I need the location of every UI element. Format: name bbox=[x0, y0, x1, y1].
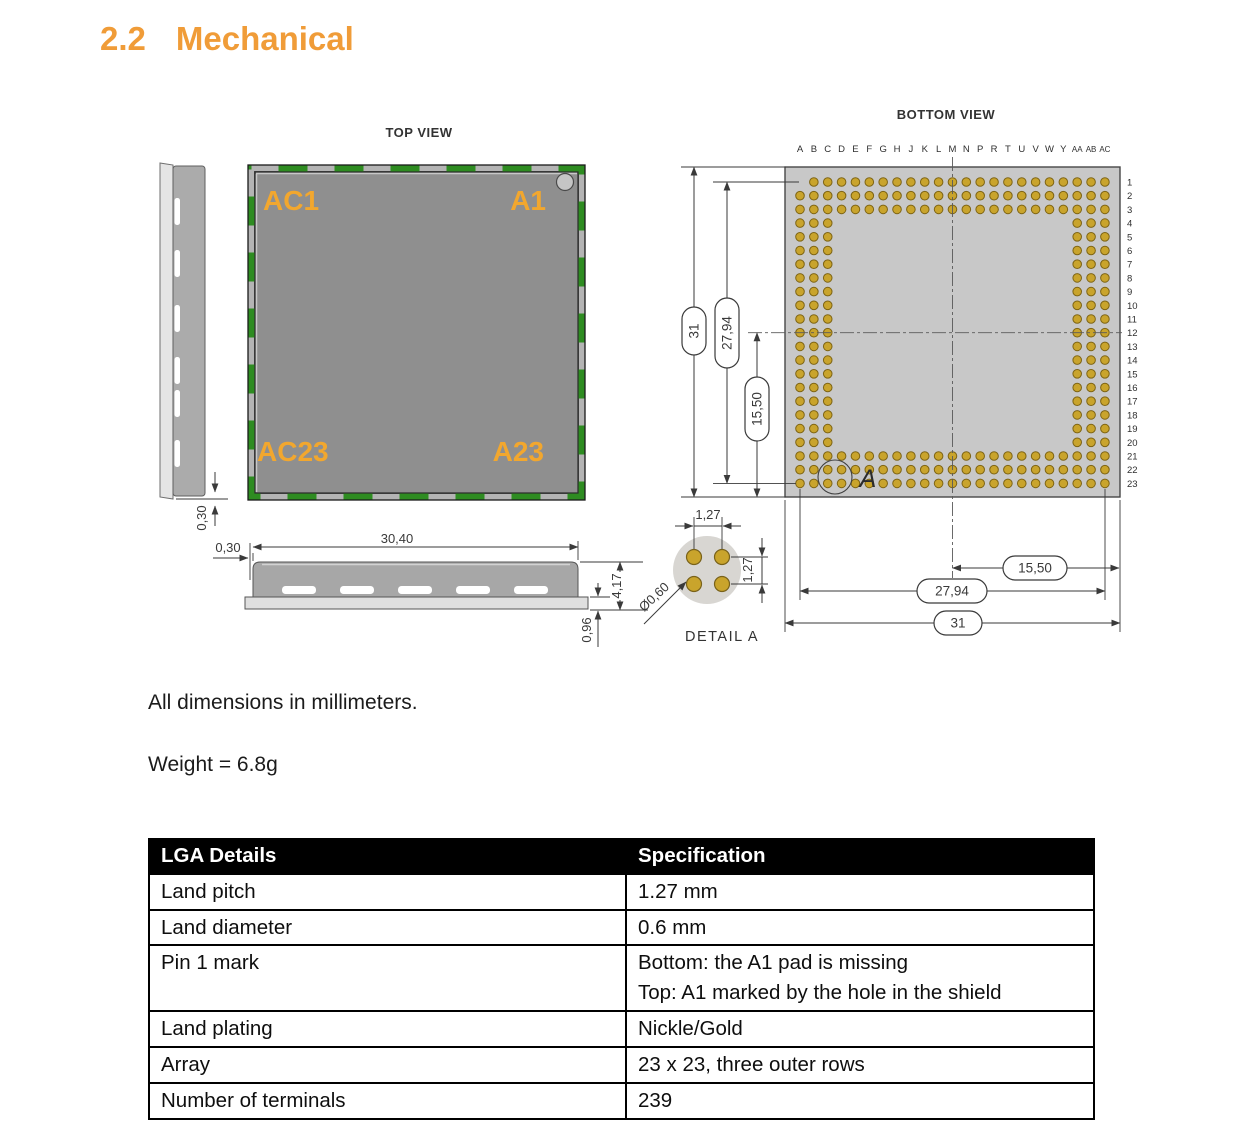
table-cell-spec: 23 x 23, three outer rows bbox=[626, 1047, 1094, 1083]
lga-pad bbox=[1087, 342, 1096, 351]
row-label: 19 bbox=[1127, 424, 1138, 435]
note-dimensions: All dimensions in millimeters. bbox=[148, 691, 418, 715]
lga-pad bbox=[976, 191, 985, 200]
lga-pad bbox=[1073, 479, 1082, 488]
lga-pad bbox=[934, 465, 943, 474]
lga-pad bbox=[1059, 178, 1068, 187]
lga-pad bbox=[1073, 191, 1082, 200]
lga-pad bbox=[823, 233, 832, 242]
lga-pad bbox=[1101, 191, 1110, 200]
lga-pad bbox=[1045, 178, 1054, 187]
castellation-slot bbox=[175, 250, 181, 277]
lga-pad bbox=[1017, 205, 1026, 214]
lga-pad bbox=[976, 452, 985, 461]
dim-front-offset: 0,30 bbox=[215, 540, 240, 555]
dim-detail-pad-diameter: Ø0,60 bbox=[636, 579, 672, 614]
corner-label-ac1: AC1 bbox=[263, 185, 319, 216]
lga-pad bbox=[948, 205, 957, 214]
lga-pad bbox=[990, 191, 999, 200]
lga-pad bbox=[1073, 287, 1082, 296]
dim-width-half: 15,50 bbox=[1003, 556, 1067, 580]
lga-pad bbox=[823, 383, 832, 392]
lga-pad bbox=[879, 191, 888, 200]
lga-pad bbox=[907, 479, 916, 488]
section-heading: 2.2Mechanical bbox=[100, 20, 354, 58]
mechanical-drawing: 0,30TOP VIEWAC1A1AC23A2330,400,304,170,9… bbox=[0, 0, 1240, 675]
lga-pad bbox=[1087, 274, 1096, 283]
lga-pad bbox=[810, 246, 819, 255]
lga-pad bbox=[1073, 246, 1082, 255]
lga-pad bbox=[823, 370, 832, 379]
lga-pad bbox=[1073, 356, 1082, 365]
lga-pad bbox=[907, 205, 916, 214]
lga-pad bbox=[810, 370, 819, 379]
lga-pad bbox=[796, 191, 805, 200]
lga-pad bbox=[823, 205, 832, 214]
dim-side-offset: 0,30 bbox=[194, 505, 209, 530]
lga-pad bbox=[837, 178, 846, 187]
lga-pad bbox=[837, 452, 846, 461]
lga-pad bbox=[823, 178, 832, 187]
lga-pad bbox=[920, 178, 929, 187]
dim-width-total: 31 bbox=[934, 611, 982, 635]
lga-pad bbox=[879, 178, 888, 187]
lga-pad bbox=[1087, 452, 1096, 461]
lga-pad bbox=[948, 191, 957, 200]
lga-pad bbox=[1031, 479, 1040, 488]
lga-pad bbox=[976, 479, 985, 488]
lga-pad bbox=[837, 479, 846, 488]
row-label: 14 bbox=[1127, 356, 1138, 367]
lga-pad bbox=[934, 452, 943, 461]
section-number: 2.2 bbox=[100, 20, 146, 57]
lga-pad bbox=[1004, 479, 1013, 488]
lga-pad bbox=[823, 328, 832, 337]
lga-pad bbox=[851, 479, 860, 488]
lga-pad bbox=[796, 383, 805, 392]
lga-pad bbox=[837, 205, 846, 214]
lga-pad bbox=[1087, 356, 1096, 365]
top-view-title: TOP VIEW bbox=[385, 125, 452, 140]
lga-pad bbox=[1101, 274, 1110, 283]
lga-pad bbox=[810, 465, 819, 474]
detail-a-disc bbox=[673, 536, 741, 604]
lga-pad bbox=[810, 411, 819, 420]
lga-pad bbox=[1059, 479, 1068, 488]
note-weight: Weight = 6.8g bbox=[148, 753, 278, 777]
pad-array bbox=[796, 178, 1110, 488]
row-label: 13 bbox=[1127, 342, 1138, 353]
svg-text:31: 31 bbox=[950, 616, 965, 631]
row-label: 9 bbox=[1127, 287, 1132, 298]
lga-pad bbox=[1031, 191, 1040, 200]
lga-pad bbox=[990, 178, 999, 187]
lga-pad bbox=[1073, 452, 1082, 461]
column-label: H bbox=[894, 144, 901, 155]
row-label: 12 bbox=[1127, 328, 1138, 339]
table-cell-spec: 1.27 mm bbox=[626, 874, 1094, 910]
lga-pad bbox=[1017, 178, 1026, 187]
row-label: 6 bbox=[1127, 246, 1132, 257]
detail-a-title: DETAIL A bbox=[685, 629, 759, 645]
lga-pad bbox=[851, 191, 860, 200]
bottom-view: BOTTOM VIEWABCDEFGHJKLMNPRTUVWYAAABAC123… bbox=[748, 107, 1138, 578]
lga-pad bbox=[1101, 246, 1110, 255]
column-label: N bbox=[963, 144, 970, 155]
row-label: 4 bbox=[1127, 219, 1132, 230]
lga-pad bbox=[810, 438, 819, 447]
lga-pad bbox=[865, 205, 874, 214]
lga-pad bbox=[810, 205, 819, 214]
lga-pad bbox=[823, 465, 832, 474]
table-cell-label: Array bbox=[149, 1047, 626, 1083]
table-cell-spec: 239 bbox=[626, 1083, 1094, 1119]
column-label: AB bbox=[1086, 145, 1097, 154]
dim-height-total: 31 bbox=[682, 307, 706, 355]
lga-pad bbox=[948, 178, 957, 187]
table-cell-spec: Nickle/Gold bbox=[626, 1011, 1094, 1047]
lga-pad bbox=[907, 465, 916, 474]
row-label: 17 bbox=[1127, 397, 1138, 408]
lga-pad bbox=[1087, 287, 1096, 296]
lga-pad bbox=[976, 205, 985, 214]
row-label: 10 bbox=[1127, 301, 1138, 312]
column-label: C bbox=[824, 144, 831, 155]
row-label: 5 bbox=[1127, 232, 1132, 243]
column-label: J bbox=[909, 144, 914, 155]
lga-pad bbox=[715, 550, 730, 565]
lga-pad bbox=[1087, 438, 1096, 447]
lga-pad bbox=[1101, 479, 1110, 488]
lga-pad bbox=[920, 191, 929, 200]
lga-pad bbox=[837, 191, 846, 200]
section-title: Mechanical bbox=[176, 20, 354, 57]
top-view: TOP VIEWAC1A1AC23A23 bbox=[248, 125, 585, 500]
lga-pad bbox=[796, 287, 805, 296]
lga-pad bbox=[865, 452, 874, 461]
row-label: 3 bbox=[1127, 205, 1132, 216]
svg-text:31: 31 bbox=[687, 323, 702, 338]
castellation-slot bbox=[456, 586, 490, 594]
lga-pad bbox=[1101, 287, 1110, 296]
lga-pad bbox=[810, 356, 819, 365]
lga-pad bbox=[1101, 383, 1110, 392]
column-label: D bbox=[838, 144, 845, 155]
lga-pad bbox=[851, 205, 860, 214]
lga-pad bbox=[796, 424, 805, 433]
table-cell-label: Land diameter bbox=[149, 910, 626, 946]
lga-pad bbox=[1087, 328, 1096, 337]
table-row: Land diameter0.6 mm bbox=[149, 910, 1094, 946]
castellation-dashes bbox=[252, 169, 582, 497]
lga-pad bbox=[1073, 328, 1082, 337]
lga-pad bbox=[823, 219, 832, 228]
lga-pad bbox=[948, 479, 957, 488]
lga-pad bbox=[1073, 178, 1082, 187]
lga-pad bbox=[796, 465, 805, 474]
column-label: Y bbox=[1060, 144, 1067, 155]
lga-pad bbox=[990, 465, 999, 474]
lga-pad bbox=[810, 383, 819, 392]
lga-pad bbox=[1017, 465, 1026, 474]
lga-pad bbox=[1073, 397, 1082, 406]
lga-pad bbox=[1087, 191, 1096, 200]
lga-pad bbox=[1101, 178, 1110, 187]
lga-pad bbox=[976, 465, 985, 474]
lga-pad bbox=[1087, 233, 1096, 242]
lga-details-table: LGA Details Specification Land pitch1.27… bbox=[148, 838, 1095, 1120]
pcb-profile bbox=[245, 597, 588, 609]
lga-pad bbox=[810, 233, 819, 242]
column-label: G bbox=[879, 144, 886, 155]
lga-pad bbox=[1101, 411, 1110, 420]
lga-pad bbox=[1073, 219, 1082, 228]
lga-pad bbox=[1045, 205, 1054, 214]
lga-pad bbox=[810, 328, 819, 337]
lga-pad bbox=[810, 274, 819, 283]
lga-pad bbox=[810, 315, 819, 324]
row-label: 16 bbox=[1127, 383, 1138, 394]
lga-pad bbox=[920, 205, 929, 214]
bottom-view-dims: 15,5027,94313127,9415,50 bbox=[681, 167, 1120, 635]
svg-text:27,94: 27,94 bbox=[720, 316, 735, 350]
lga-pad bbox=[1073, 424, 1082, 433]
lga-pad bbox=[810, 479, 819, 488]
lga-pad bbox=[893, 191, 902, 200]
lga-pad bbox=[1101, 424, 1110, 433]
lga-pad bbox=[1087, 178, 1096, 187]
lga-pad bbox=[796, 397, 805, 406]
lga-pad bbox=[1017, 479, 1026, 488]
lga-pad bbox=[1045, 452, 1054, 461]
lga-pad bbox=[962, 479, 971, 488]
column-label: AA bbox=[1072, 145, 1083, 154]
lga-pad bbox=[948, 452, 957, 461]
corner-label-a23: A23 bbox=[493, 436, 544, 467]
column-label: B bbox=[811, 144, 817, 155]
lga-pad bbox=[1087, 260, 1096, 269]
lga-pad bbox=[796, 246, 805, 255]
lga-pad bbox=[990, 452, 999, 461]
lga-pad bbox=[1087, 383, 1096, 392]
table-row: Number of terminals239 bbox=[149, 1083, 1094, 1119]
lga-pad bbox=[1101, 301, 1110, 310]
lga-pad bbox=[1087, 315, 1096, 324]
lga-pad bbox=[1101, 438, 1110, 447]
lga-pad bbox=[962, 465, 971, 474]
table-header-lga-details: LGA Details bbox=[149, 839, 626, 874]
lga-pad bbox=[1087, 479, 1096, 488]
table-cell-spec: Bottom: the A1 pad is missingTop: A1 mar… bbox=[626, 945, 1094, 1011]
svg-text:15,50: 15,50 bbox=[1018, 561, 1052, 576]
lga-pad bbox=[907, 178, 916, 187]
lga-pad bbox=[1059, 452, 1068, 461]
lga-pad bbox=[1101, 205, 1110, 214]
lga-pad bbox=[1017, 452, 1026, 461]
detail-a: 1,271,27Ø0,60DETAIL A bbox=[636, 507, 768, 645]
column-label: U bbox=[1018, 144, 1025, 155]
lga-pad bbox=[879, 205, 888, 214]
lga-pad bbox=[796, 452, 805, 461]
lga-pad bbox=[907, 452, 916, 461]
row-label: 2 bbox=[1127, 191, 1132, 202]
lga-pad bbox=[810, 342, 819, 351]
lga-pad bbox=[823, 246, 832, 255]
lga-pad bbox=[1073, 438, 1082, 447]
lga-pad bbox=[796, 219, 805, 228]
lga-pad bbox=[1101, 370, 1110, 379]
lga-pad bbox=[823, 438, 832, 447]
column-label: AC bbox=[1099, 145, 1110, 154]
lga-pad bbox=[934, 191, 943, 200]
lga-pad bbox=[865, 479, 874, 488]
dim-front-pcb-height: 0,96 bbox=[579, 617, 594, 642]
column-label: L bbox=[936, 144, 941, 155]
lga-pad bbox=[810, 397, 819, 406]
side-view: 0,30 bbox=[160, 163, 228, 531]
shield bbox=[255, 172, 578, 493]
lga-pad bbox=[1004, 191, 1013, 200]
lga-pad bbox=[796, 479, 805, 488]
lga-pad bbox=[796, 315, 805, 324]
castellation-slot bbox=[282, 586, 316, 594]
lga-pad bbox=[1073, 383, 1082, 392]
lga-pad bbox=[920, 452, 929, 461]
row-label: 20 bbox=[1127, 438, 1138, 449]
lga-pad bbox=[962, 452, 971, 461]
lga-pad bbox=[796, 233, 805, 242]
lga-pad bbox=[1087, 246, 1096, 255]
castellation-slot bbox=[398, 586, 432, 594]
dim-detail-pitch-h: 1,27 bbox=[695, 507, 720, 522]
lga-pad bbox=[687, 577, 702, 592]
corner-label-a1: A1 bbox=[510, 185, 546, 216]
bottom-view-title: BOTTOM VIEW bbox=[897, 107, 996, 122]
lga-pad bbox=[851, 178, 860, 187]
lga-pad bbox=[893, 479, 902, 488]
lga-pad bbox=[823, 397, 832, 406]
column-label: F bbox=[866, 144, 872, 155]
lga-pad bbox=[1101, 397, 1110, 406]
lga-pad bbox=[920, 465, 929, 474]
row-label: 22 bbox=[1127, 465, 1138, 476]
lga-pad bbox=[976, 178, 985, 187]
lga-pad bbox=[948, 465, 957, 474]
lga-pad bbox=[823, 301, 832, 310]
lga-pad bbox=[823, 479, 832, 488]
lga-pad bbox=[810, 301, 819, 310]
svg-text:15,50: 15,50 bbox=[750, 392, 765, 426]
table-row: Pin 1 markBottom: the A1 pad is missingT… bbox=[149, 945, 1094, 1011]
lga-pad bbox=[837, 465, 846, 474]
table-cell-spec: 0.6 mm bbox=[626, 910, 1094, 946]
lga-pad bbox=[1031, 452, 1040, 461]
lga-pad bbox=[962, 191, 971, 200]
detail-a-marker-label: A bbox=[858, 465, 877, 493]
lga-pad bbox=[934, 205, 943, 214]
lga-pad bbox=[687, 550, 702, 565]
lga-pad bbox=[1101, 452, 1110, 461]
lga-pad bbox=[823, 191, 832, 200]
lga-pad bbox=[1073, 315, 1082, 324]
lga-pad bbox=[1004, 205, 1013, 214]
row-label: 15 bbox=[1127, 369, 1138, 380]
lga-pad bbox=[796, 274, 805, 283]
lga-pad bbox=[796, 260, 805, 269]
lga-pad bbox=[796, 370, 805, 379]
column-label: T bbox=[1005, 144, 1011, 155]
shield-profile bbox=[253, 562, 578, 597]
lga-pad bbox=[1045, 191, 1054, 200]
lga-pad bbox=[865, 191, 874, 200]
lga-pad bbox=[823, 342, 832, 351]
lga-pad bbox=[823, 287, 832, 296]
lga-pad bbox=[879, 452, 888, 461]
castellation-slot bbox=[175, 357, 181, 384]
table-row: Array23 x 23, three outer rows bbox=[149, 1047, 1094, 1083]
castellation-slot bbox=[175, 198, 181, 225]
lga-pad bbox=[990, 205, 999, 214]
column-label: R bbox=[991, 144, 998, 155]
table-cell-label: Pin 1 mark bbox=[149, 945, 626, 1011]
lga-pad bbox=[1017, 191, 1026, 200]
row-label: 7 bbox=[1127, 260, 1132, 271]
lga-pad bbox=[893, 452, 902, 461]
lga-pad bbox=[1073, 370, 1082, 379]
lga-pad bbox=[796, 328, 805, 337]
lga-pad bbox=[1087, 397, 1096, 406]
lga-pad bbox=[796, 438, 805, 447]
castellation-slot bbox=[175, 440, 181, 467]
lga-pad bbox=[1087, 465, 1096, 474]
lga-pad bbox=[879, 479, 888, 488]
lga-pad bbox=[823, 274, 832, 283]
lga-pad bbox=[893, 465, 902, 474]
lga-pad bbox=[879, 465, 888, 474]
lga-pad bbox=[1087, 424, 1096, 433]
lga-pad bbox=[1031, 465, 1040, 474]
lga-pad bbox=[796, 205, 805, 214]
corner-label-ac23: AC23 bbox=[257, 436, 329, 467]
lga-pad bbox=[1073, 411, 1082, 420]
lga-pad bbox=[1087, 370, 1096, 379]
dim-front-total-height: 4,17 bbox=[609, 573, 624, 598]
lga-pad bbox=[1087, 219, 1096, 228]
column-label: K bbox=[922, 144, 929, 155]
dim-height-half: 15,50 bbox=[745, 377, 769, 441]
lga-pad bbox=[810, 424, 819, 433]
row-label: 8 bbox=[1127, 273, 1132, 284]
lga-pad bbox=[1073, 342, 1082, 351]
lga-pad bbox=[715, 577, 730, 592]
lga-pad bbox=[1031, 178, 1040, 187]
lga-pad bbox=[1004, 452, 1013, 461]
lga-pad bbox=[962, 205, 971, 214]
lga-pad bbox=[893, 178, 902, 187]
lga-pad bbox=[865, 465, 874, 474]
lga-pad bbox=[1087, 205, 1096, 214]
row-label: 18 bbox=[1127, 410, 1138, 421]
lga-pad bbox=[934, 178, 943, 187]
row-label: 11 bbox=[1127, 315, 1137, 326]
row-label: 21 bbox=[1127, 452, 1138, 463]
bottom-view-body bbox=[785, 167, 1120, 497]
detail-a-marker-circle bbox=[818, 460, 852, 494]
lga-pad bbox=[1101, 356, 1110, 365]
lga-pad bbox=[1059, 191, 1068, 200]
castellation-slot bbox=[175, 390, 181, 417]
lga-pad bbox=[934, 479, 943, 488]
